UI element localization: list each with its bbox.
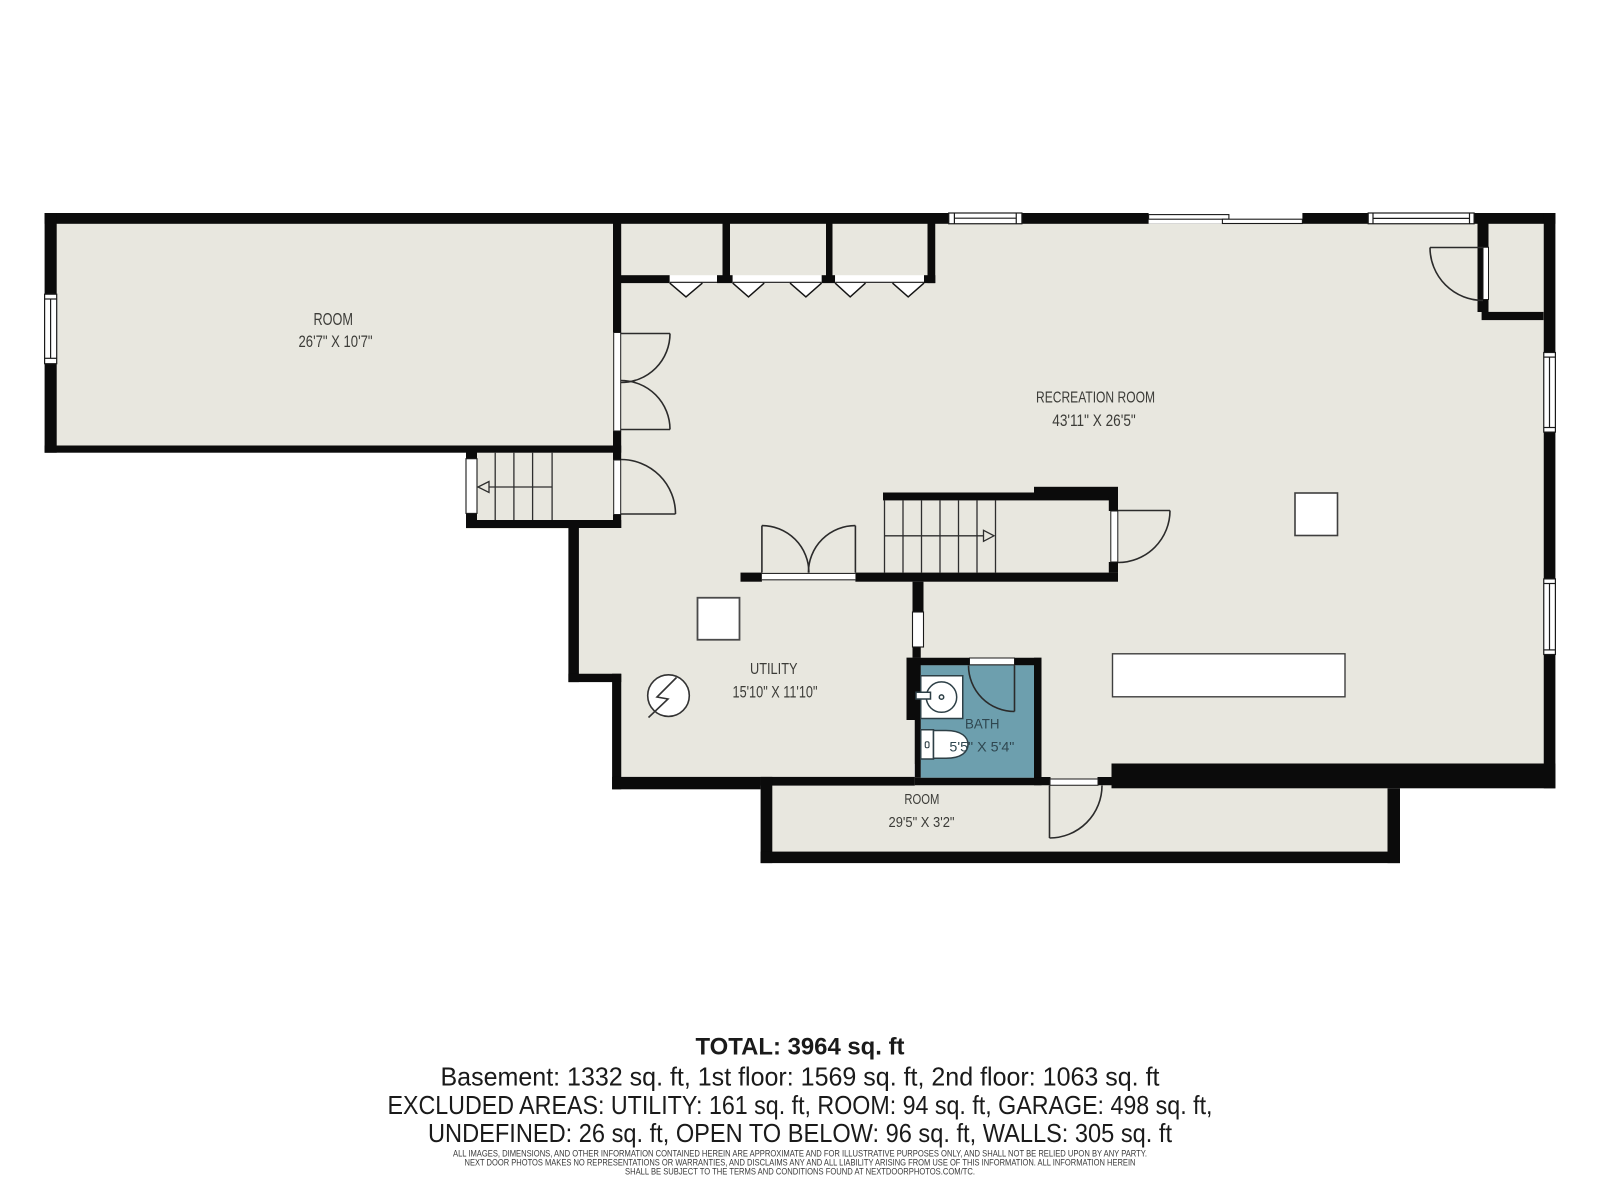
- svg-text:Basement: 1332 sq. ft, 1st flo: Basement: 1332 sq. ft, 1st floor: 1569 s…: [441, 1062, 1161, 1092]
- svg-text:ROOM: ROOM: [314, 309, 354, 329]
- svg-text:BATH: BATH: [965, 716, 1000, 731]
- svg-text:UTILITY: UTILITY: [750, 661, 798, 678]
- svg-text:26'7" X 10'7": 26'7" X 10'7": [299, 332, 373, 351]
- svg-text:EXCLUDED AREAS: UTILITY: 161 s: EXCLUDED AREAS: UTILITY: 161 sq. ft, ROO…: [388, 1090, 1213, 1120]
- svg-text:5'5" X 5'4": 5'5" X 5'4": [949, 738, 1014, 754]
- svg-text:UNDEFINED: 26 sq. ft, OPEN TO: UNDEFINED: 26 sq. ft, OPEN TO BELOW: 96 …: [428, 1118, 1173, 1148]
- svg-text:29'5" X 3'2": 29'5" X 3'2": [889, 815, 955, 831]
- svg-text:ROOM: ROOM: [904, 792, 939, 808]
- svg-text:RECREATION ROOM: RECREATION ROOM: [1036, 390, 1155, 407]
- svg-text:TOTAL: 3964 sq. ft: TOTAL: 3964 sq. ft: [696, 1034, 905, 1061]
- svg-text:43'11" X 26'5": 43'11" X 26'5": [1052, 412, 1136, 430]
- svg-text:15'10" X 11'10": 15'10" X 11'10": [733, 683, 818, 701]
- svg-text:SHALL BE SUBJECT TO THE TERMS: SHALL BE SUBJECT TO THE TERMS AND CONDIT…: [625, 1167, 975, 1177]
